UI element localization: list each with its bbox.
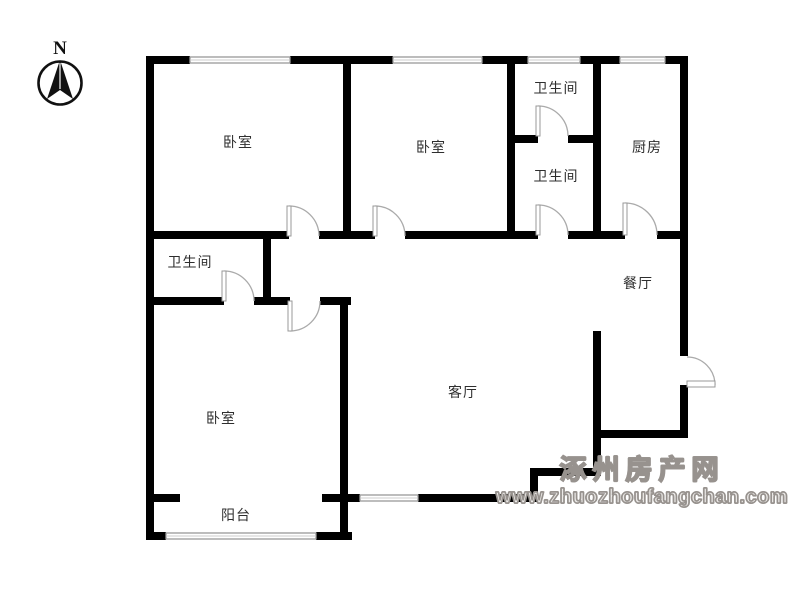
room-label-balcony: 阳台 bbox=[221, 505, 251, 525]
wall-segment bbox=[405, 231, 538, 239]
wall-segment bbox=[322, 494, 360, 502]
room-label-bathroom-top: 卫生间 bbox=[534, 78, 579, 98]
watermark: 涿州房产网 www.zhuozhoufangchan.com bbox=[496, 456, 788, 508]
room-label-bathroom-middle: 卫生间 bbox=[534, 166, 579, 186]
door-arc bbox=[289, 206, 319, 236]
wall-segment bbox=[568, 135, 601, 143]
wall-segment bbox=[146, 297, 224, 305]
wall-segment bbox=[507, 56, 515, 239]
wall-segment bbox=[657, 231, 688, 239]
room-label-bedroom-1: 卧室 bbox=[223, 132, 253, 152]
door-arc bbox=[290, 301, 320, 331]
door-arc bbox=[538, 106, 568, 136]
door-leaf bbox=[373, 206, 377, 236]
compass-north-label: N bbox=[53, 38, 67, 60]
floorplan-drawing bbox=[0, 0, 800, 600]
wall-segment bbox=[254, 297, 290, 305]
room-label-bedroom-2: 卧室 bbox=[416, 137, 446, 157]
wall-segment bbox=[146, 532, 166, 540]
wall-segment bbox=[316, 532, 352, 540]
room-label-dining-room: 餐厅 bbox=[623, 273, 653, 293]
wall-segment bbox=[482, 56, 528, 64]
wall-segment bbox=[290, 56, 393, 64]
room-label-kitchen: 厨房 bbox=[632, 137, 662, 157]
room-label-bathroom-ensuite: 卫生间 bbox=[168, 252, 213, 272]
door-leaf bbox=[536, 205, 540, 235]
room-label-bedroom-3: 卧室 bbox=[206, 408, 236, 428]
compass-icon bbox=[39, 60, 82, 105]
wall-segment bbox=[601, 430, 688, 438]
door-arc bbox=[224, 271, 254, 301]
wall-segment bbox=[263, 231, 271, 305]
door-leaf bbox=[222, 271, 226, 301]
door-leaf bbox=[287, 206, 291, 236]
door-arc bbox=[375, 206, 405, 236]
door-leaf bbox=[288, 301, 292, 331]
wall-segment bbox=[593, 56, 601, 239]
door-arc bbox=[538, 205, 568, 235]
door-leaf bbox=[536, 106, 540, 136]
watermark-site-url: www.zhuozhoufangchan.com bbox=[496, 486, 788, 508]
floorplan-canvas: N 卧室 卧室 卫生间 卫生间 厨房 卫生间 餐厅 客厅 卧室 阳台 涿州房产网… bbox=[0, 0, 800, 600]
wall-segment bbox=[680, 56, 688, 356]
door-leaf bbox=[623, 203, 627, 235]
watermark-site-name: 涿州房产网 bbox=[496, 456, 788, 486]
door-leaf bbox=[687, 381, 715, 387]
wall-segment bbox=[343, 56, 351, 239]
wall-segment bbox=[340, 297, 348, 540]
wall-segment bbox=[146, 494, 180, 502]
wall-segment bbox=[507, 135, 538, 143]
door-arc bbox=[625, 203, 657, 235]
room-label-living-room: 客厅 bbox=[448, 382, 478, 402]
